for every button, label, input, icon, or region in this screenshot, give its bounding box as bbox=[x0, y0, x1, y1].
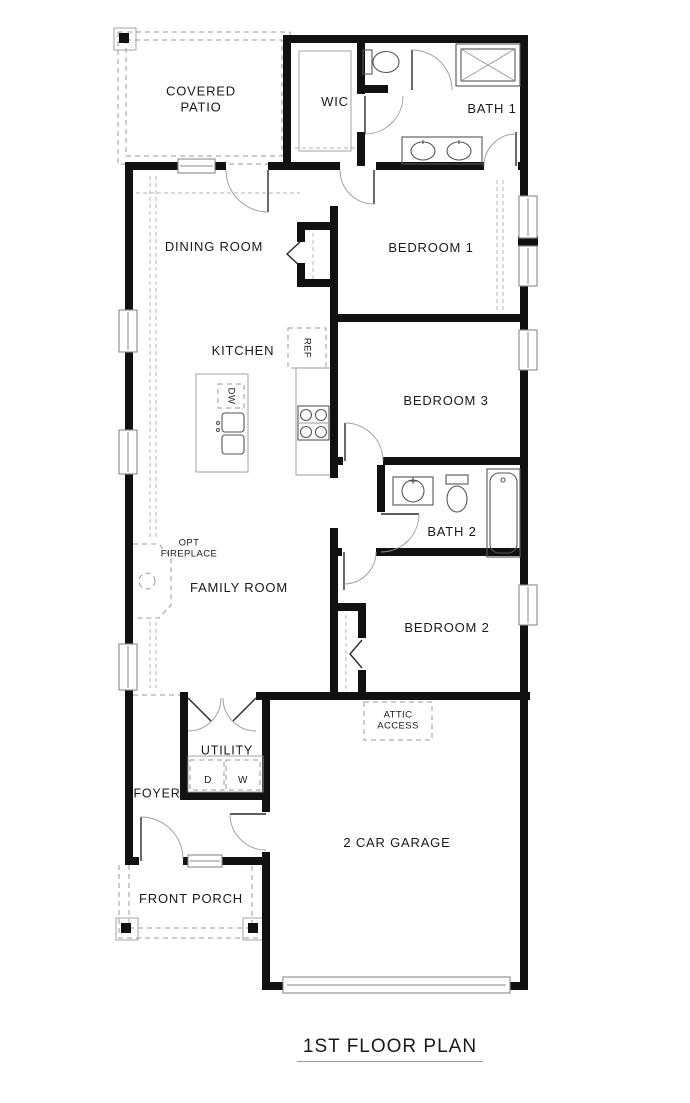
room-label-front-porch: FRONT PORCH bbox=[139, 891, 243, 907]
refrigerator-label: REF bbox=[301, 338, 312, 358]
plan-title: 1ST FLOOR PLAN bbox=[297, 1036, 483, 1062]
utility-fixtures bbox=[188, 756, 263, 792]
room-label-foyer: FOYER bbox=[133, 787, 180, 802]
dryer-label: D bbox=[204, 775, 212, 787]
room-label-bedroom-2: BEDROOM 2 bbox=[404, 620, 489, 636]
bath2-fixtures bbox=[393, 469, 520, 557]
toilet-bowl bbox=[447, 486, 467, 512]
sink bbox=[447, 142, 471, 160]
attic-access-label: ATTIC ACCESS bbox=[377, 710, 418, 733]
floor-plan-drawing bbox=[0, 0, 690, 1103]
toilet-bowl bbox=[373, 52, 399, 73]
opt-fireplace-label: OPT FIREPLACE bbox=[161, 538, 217, 561]
room-label-covered-patio: COVERED PATIO bbox=[166, 83, 236, 114]
room-label-dining-room: DINING ROOM bbox=[165, 239, 263, 255]
room-label-utility: UTILITY bbox=[201, 744, 253, 759]
sink bbox=[411, 142, 435, 160]
sink-bowl bbox=[222, 413, 244, 432]
walls bbox=[125, 35, 538, 990]
room-label-bath-2: BATH 2 bbox=[427, 524, 476, 540]
double-vanity bbox=[402, 137, 482, 164]
room-label-bath-1: BATH 1 bbox=[467, 101, 516, 117]
room-label-wic: WIC bbox=[321, 94, 349, 110]
dishwasher-label: DW bbox=[225, 388, 236, 405]
kitchen-counter bbox=[296, 368, 330, 475]
room-label-bedroom-3: BEDROOM 3 bbox=[403, 393, 488, 409]
washer-label: W bbox=[238, 775, 248, 787]
room-label-family-room: FAMILY ROOM bbox=[190, 580, 288, 596]
room-label-garage: 2 CAR GARAGE bbox=[343, 835, 450, 851]
closet-bifold-door bbox=[350, 640, 362, 668]
floor-plan: COVERED PATIO WIC BATH 1 DINING ROOM BED… bbox=[0, 0, 690, 1103]
room-label-bedroom-1: BEDROOM 1 bbox=[388, 240, 473, 256]
room-label-kitchen: KITCHEN bbox=[212, 343, 275, 359]
pantry-bifold-door bbox=[287, 242, 300, 266]
sink-bowl bbox=[222, 435, 244, 454]
ceiling-dashed-lines bbox=[133, 148, 503, 695]
toilet-tank bbox=[446, 475, 468, 484]
